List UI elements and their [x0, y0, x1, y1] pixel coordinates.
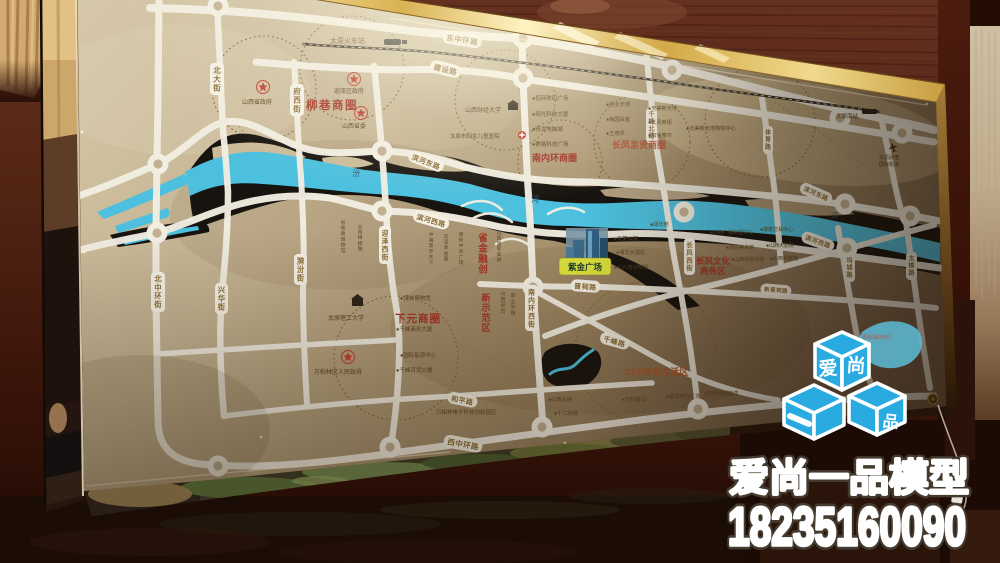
svg-text:晋阳湖商务区: 晋阳湖商务区 — [862, 334, 892, 341]
svg-text:品: 品 — [882, 412, 900, 432]
svg-text:尚: 尚 — [846, 353, 867, 377]
svg-text:爱尚一品模型: 爱尚一品模型 — [729, 458, 969, 500]
svg-text:18235160090: 18235160090 — [728, 497, 966, 557]
svg-text:爱: 爱 — [818, 357, 839, 380]
